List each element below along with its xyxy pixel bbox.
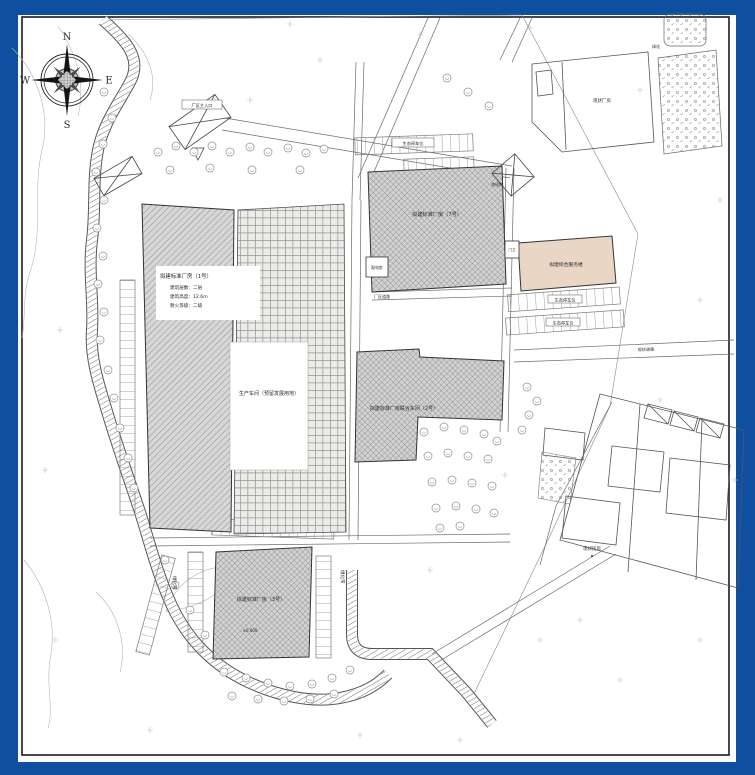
- green-left-label: 绿化带: [171, 576, 178, 590]
- compass-east-label: E: [105, 76, 112, 87]
- workshop7-name: 拟建标准厂房（7号）: [412, 210, 462, 218]
- parking-right2-label: 生态停车位: [553, 320, 574, 327]
- workshop1-line2: 建筑层数：二层: [170, 284, 203, 291]
- green-corner-label: 绿化: [652, 43, 660, 49]
- power-room-name: 配电房: [371, 265, 383, 270]
- green-bottom-label: 绿化带: [339, 570, 346, 584]
- workshop3-level: ±0.000: [243, 628, 258, 633]
- building-workshop1: [142, 204, 234, 532]
- compass-south-label: S: [64, 120, 71, 131]
- workshop1-name: 拟建标准厂房（1号）: [160, 272, 212, 280]
- existing-name: 现状民房: [583, 545, 601, 552]
- compass-north-label: N: [63, 32, 72, 43]
- guard-house-name: 门卫: [509, 247, 517, 252]
- building-workshop3: [213, 547, 312, 659]
- road-bottom-label: 厂区道路: [374, 293, 390, 299]
- parking-right1-label: 生态停车位: [555, 297, 576, 304]
- planting-area-southeast: [538, 452, 576, 504]
- reserve-area: [230, 342, 308, 470]
- office-name: 拟建综合服务楼: [549, 261, 583, 268]
- workshop2-name: 拟建标准厂房联合车间（2号）: [370, 405, 438, 412]
- planting-area-northeast: [658, 50, 722, 154]
- site-plan-screenshot: N S W E 拟建标准厂房（1号） 建筑层数：二层 建筑高度：12.6m 耐火…: [0, 0, 755, 775]
- parking-top-label: 生态停车位: [403, 140, 424, 147]
- existing-factory-name: 现状厂房: [593, 97, 611, 104]
- weighbridge-label: 地磅房: [491, 182, 503, 187]
- building-workshop7: [368, 166, 506, 292]
- workshop1-line3: 建筑高度：12.6m: [170, 293, 208, 300]
- compass-west-label: W: [20, 76, 31, 87]
- workshop1-line4: 耐火等级：二级: [170, 302, 203, 309]
- planting-patch-top: [664, 14, 706, 46]
- reserve-name: 生产车间（预留发展用地）: [239, 390, 299, 397]
- site-plan-drawing: N S W E 拟建标准厂房（1号） 建筑层数：二层 建筑高度：12.6m 耐火…: [0, 0, 755, 775]
- gate-label: 厂区主入口: [192, 102, 213, 109]
- workshop3-name: 拟建标准厂房（3号）: [237, 596, 285, 603]
